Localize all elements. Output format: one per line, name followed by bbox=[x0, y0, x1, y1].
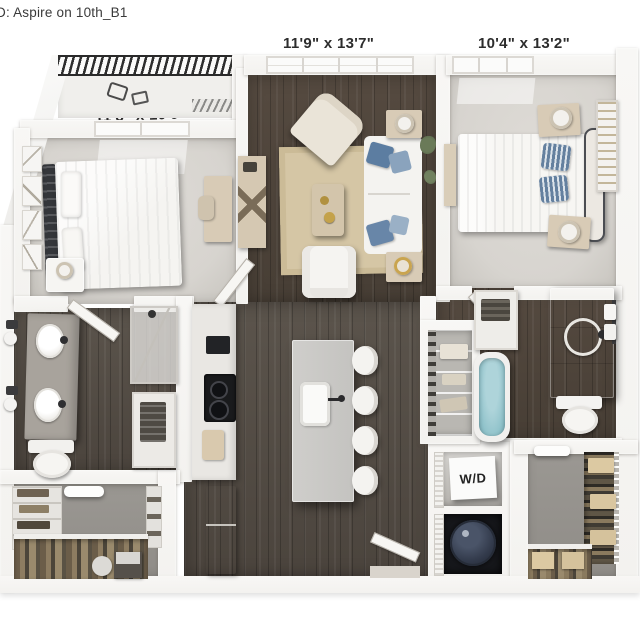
shower bbox=[130, 306, 178, 384]
sofa-pillow-blue bbox=[388, 214, 409, 235]
window-light-patch bbox=[457, 78, 536, 104]
storage-box bbox=[588, 458, 614, 473]
bathroom-cabinet bbox=[132, 392, 176, 468]
nightstand-lamp bbox=[56, 262, 73, 279]
storage-box bbox=[590, 530, 616, 545]
dimension-label-bedroom-right: 10'4" x 13'2" bbox=[478, 35, 570, 52]
water-heater bbox=[450, 520, 496, 566]
floor-plan-screenshot: D: Aspire on 10th_B1 11'9" x 13'7" 10'4"… bbox=[0, 0, 640, 640]
console-decor bbox=[243, 162, 257, 172]
storage-box bbox=[532, 552, 554, 569]
bed-pillow bbox=[61, 171, 81, 217]
wall-sconce-shade bbox=[4, 398, 17, 411]
hanging-towel bbox=[604, 304, 616, 320]
island-sink bbox=[300, 382, 330, 426]
bed-pillow-striped bbox=[541, 142, 572, 171]
basket bbox=[439, 396, 468, 413]
gold-table-lamp bbox=[394, 257, 412, 275]
heater-louver-door bbox=[434, 514, 444, 576]
hat-box bbox=[92, 556, 112, 576]
toilet-bowl bbox=[33, 450, 71, 478]
bar-stool bbox=[352, 466, 378, 495]
wall-art-frame bbox=[22, 210, 42, 240]
desk-chair bbox=[198, 196, 214, 220]
wall-bath1-closet1 bbox=[0, 470, 180, 484]
wall-laundry-closet2 bbox=[510, 440, 528, 584]
bedroom-left-window bbox=[94, 121, 190, 137]
wall-bed1-bath1-a bbox=[14, 296, 68, 312]
water-heater-cap bbox=[462, 530, 469, 537]
sofa bbox=[364, 136, 422, 254]
laundry-louver-door bbox=[434, 452, 444, 508]
bed-pillow-striped bbox=[539, 175, 570, 204]
nightstand-lamp bbox=[558, 221, 580, 243]
storage-box bbox=[562, 552, 584, 569]
toilet-bowl bbox=[562, 406, 598, 434]
plant bbox=[424, 170, 436, 184]
cabinet-contents bbox=[140, 402, 166, 442]
cooktop bbox=[204, 374, 236, 422]
bedroom-right-desk bbox=[444, 144, 456, 206]
gold-decor bbox=[320, 196, 329, 205]
wall-bed2-bath2-a bbox=[436, 286, 472, 300]
wall-art-frame bbox=[22, 176, 42, 206]
shower-head bbox=[148, 310, 156, 318]
bar-stool bbox=[352, 426, 378, 455]
faucet bbox=[58, 400, 66, 408]
wall-art-frame bbox=[22, 146, 42, 172]
bar-stool bbox=[352, 386, 378, 415]
living-room-window bbox=[266, 56, 414, 74]
folded-towels bbox=[442, 374, 466, 385]
faucet bbox=[60, 336, 68, 344]
counter-appliance bbox=[206, 336, 230, 354]
outer-wall-right bbox=[616, 48, 638, 584]
balcony-railing bbox=[58, 55, 240, 76]
closet-1-side-shelf bbox=[146, 486, 162, 548]
washer-dryer-label: W/D bbox=[459, 470, 487, 486]
folded-clothes bbox=[17, 521, 50, 529]
bar-stool bbox=[352, 346, 378, 375]
wall-sconce bbox=[6, 386, 18, 395]
linen-shelves bbox=[428, 330, 472, 436]
towel-stack bbox=[481, 299, 510, 321]
wall-sconce bbox=[6, 320, 18, 329]
storage-box bbox=[590, 494, 616, 509]
wall-art-frame bbox=[22, 244, 42, 270]
sofa-cushion-divider bbox=[368, 193, 410, 195]
closet-light-fixture bbox=[64, 486, 104, 497]
plan-title: D: Aspire on 10th_B1 bbox=[0, 5, 128, 20]
small-appliance bbox=[202, 430, 224, 460]
gold-decor bbox=[324, 212, 335, 223]
refrigerator bbox=[206, 486, 236, 574]
nightstand-lamp bbox=[550, 107, 572, 129]
entry-threshold bbox=[370, 566, 420, 578]
tub-deck-shelf bbox=[474, 290, 518, 350]
table-lamp bbox=[395, 114, 414, 133]
folded-towels bbox=[440, 344, 468, 359]
closet-light-fixture bbox=[534, 446, 570, 456]
closet-2-top-wall bbox=[514, 440, 638, 454]
bathtub bbox=[474, 352, 510, 442]
bathtub-water bbox=[479, 358, 505, 436]
wall-art-frame-tall bbox=[596, 100, 618, 192]
dimension-label-living-room: 11'9" x 13'7" bbox=[283, 35, 374, 52]
island-faucet-base bbox=[338, 395, 345, 402]
linen-shelf-slots bbox=[428, 330, 436, 436]
storage-cabinet-top bbox=[116, 552, 140, 564]
folded-clothes bbox=[17, 489, 49, 497]
burner bbox=[210, 381, 228, 399]
bedroom-right-window bbox=[452, 56, 534, 74]
hanging-towel bbox=[604, 324, 616, 340]
burner bbox=[209, 400, 229, 420]
coffee-table bbox=[312, 184, 344, 236]
wall-sconce-shade bbox=[4, 332, 17, 345]
armchair bbox=[302, 246, 356, 298]
wall-bath1-kitchen bbox=[176, 296, 192, 482]
folded-clothes bbox=[19, 505, 49, 513]
vessel-sink bbox=[564, 318, 602, 356]
